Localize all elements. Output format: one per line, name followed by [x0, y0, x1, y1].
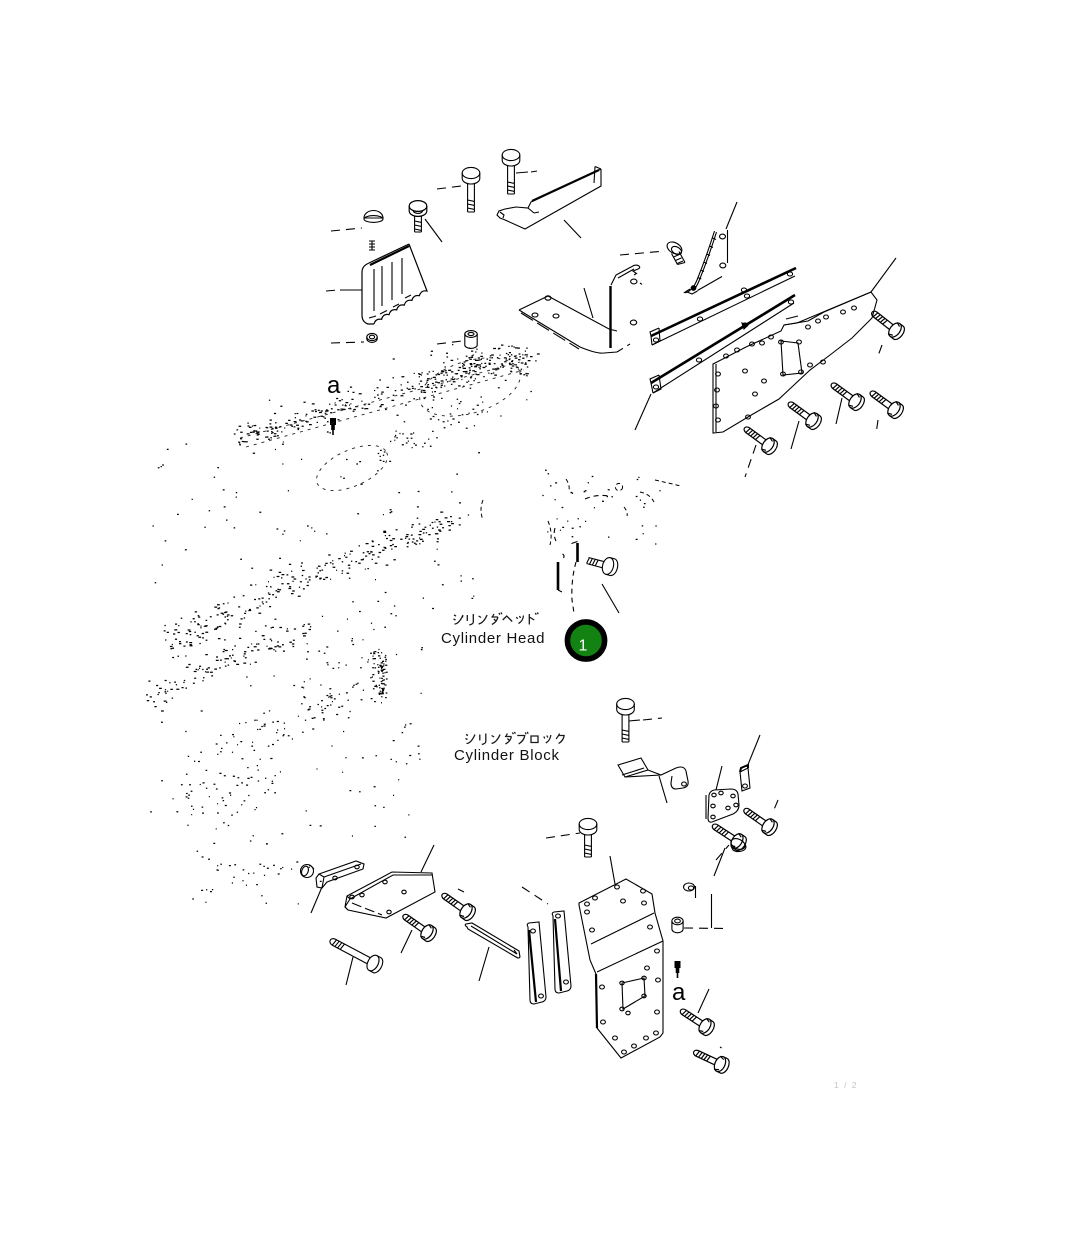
svg-text:Cylinder Head: Cylinder Head — [441, 630, 545, 647]
svg-text:1: 1 — [579, 638, 588, 655]
svg-text:1 / 2: 1 / 2 — [834, 1080, 858, 1090]
svg-text:a: a — [327, 372, 341, 399]
svg-text:a: a — [672, 979, 686, 1006]
svg-text:Cylinder Block: Cylinder Block — [454, 747, 560, 764]
